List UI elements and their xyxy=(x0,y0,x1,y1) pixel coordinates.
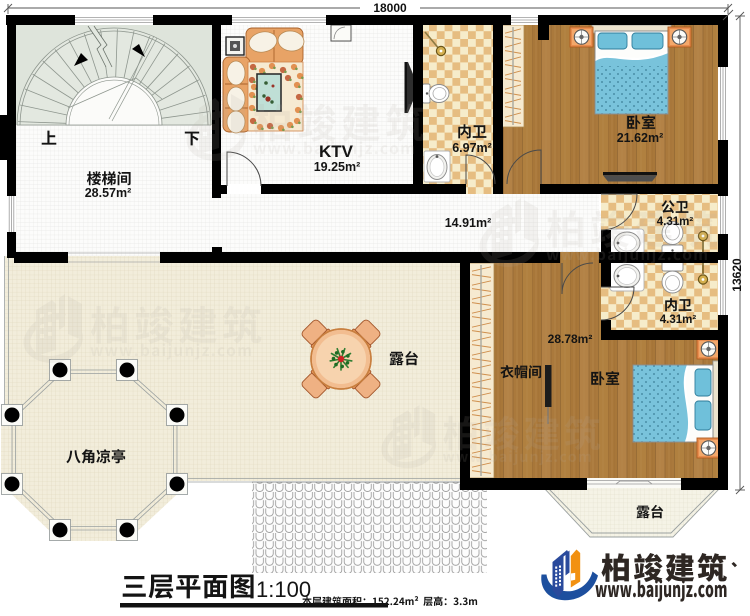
svg-text:14.91m²: 14.91m² xyxy=(445,216,492,230)
svg-text:4.31m²: 4.31m² xyxy=(657,216,694,228)
svg-text:6.97m²: 6.97m² xyxy=(452,141,492,155)
svg-text:KTV: KTV xyxy=(319,142,354,161)
svg-text:28.57m²: 28.57m² xyxy=(85,186,132,200)
svg-text:28.78m²: 28.78m² xyxy=(548,332,593,346)
svg-text:21.62m²: 21.62m² xyxy=(617,131,664,145)
svg-text:1:100: 1:100 xyxy=(256,577,311,602)
svg-text:19.25m²: 19.25m² xyxy=(314,160,361,174)
svg-text:4.31m²: 4.31m² xyxy=(660,314,697,326)
svg-text:13620: 13620 xyxy=(730,258,744,292)
svg-text:18000: 18000 xyxy=(373,1,407,15)
